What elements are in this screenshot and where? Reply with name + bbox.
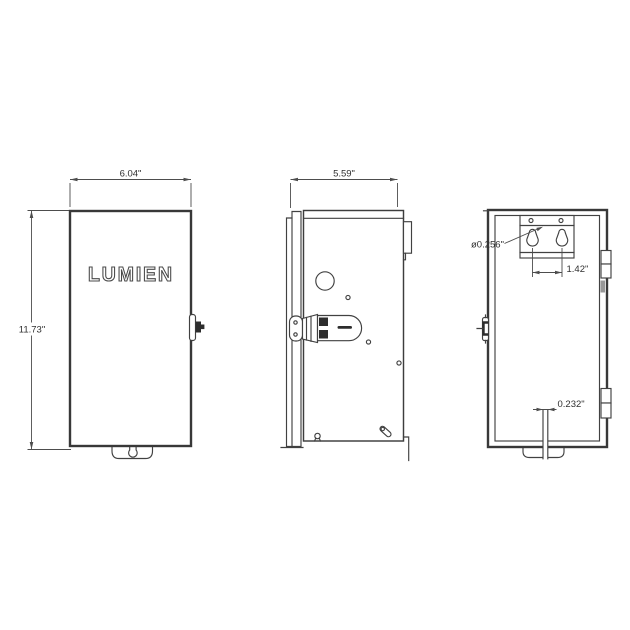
dim-front-height: 11.73" bbox=[15, 211, 72, 450]
dim-label-keyhole-diameter: ø0.256" bbox=[471, 240, 504, 251]
enclosure-technical-drawing: LUMIEN 6.04" 11.73" bbox=[0, 0, 630, 630]
mount-bracket bbox=[520, 216, 574, 259]
latch-side-icon bbox=[290, 315, 362, 343]
hinge-bottom-icon bbox=[601, 389, 611, 419]
dim-front-width: 6.04" bbox=[70, 169, 191, 208]
latch-front-icon bbox=[190, 315, 205, 341]
side-rear-bracket bbox=[404, 222, 412, 254]
front-body bbox=[70, 211, 191, 446]
dim-label-front-height: 11.73" bbox=[19, 325, 45, 336]
side-view bbox=[281, 211, 412, 461]
side-rear-flange bbox=[404, 437, 409, 461]
front-view: LUMIEN bbox=[70, 211, 204, 459]
latch-back-icon bbox=[477, 315, 489, 343]
dim-label-front-width: 6.04" bbox=[120, 169, 142, 180]
dim-label-keyhole-spacing: 1.42" bbox=[567, 264, 589, 275]
dim-label-side-depth: 5.59" bbox=[333, 169, 355, 180]
drawing-canvas: LUMIEN 6.04" 11.73" bbox=[0, 0, 630, 630]
dim-label-slot-width: 0.232" bbox=[558, 399, 585, 410]
dim-side-depth: 5.59" bbox=[291, 169, 398, 209]
front-tab-slot bbox=[129, 447, 138, 457]
brand-logo: LUMIEN bbox=[88, 264, 174, 286]
